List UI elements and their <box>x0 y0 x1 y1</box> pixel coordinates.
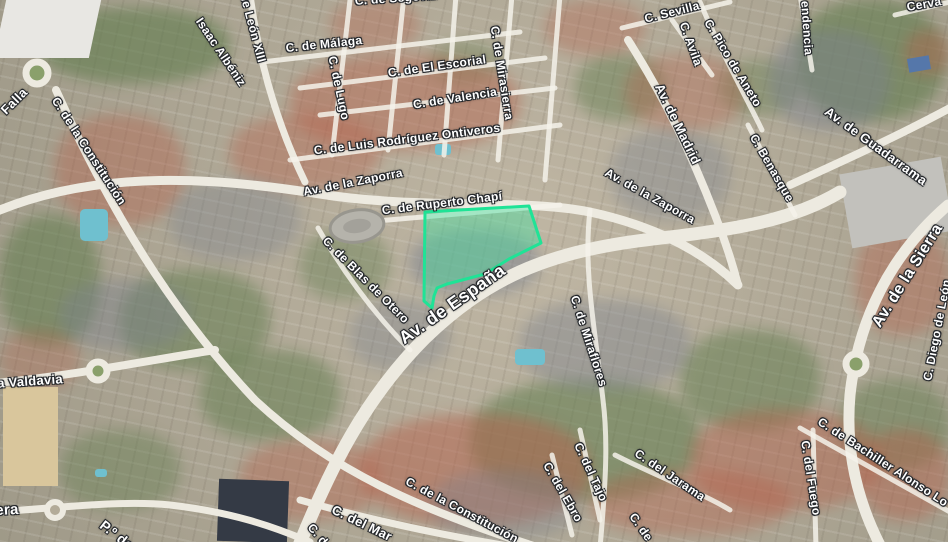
street-label: C. de la Constitución <box>404 475 521 542</box>
street-labels-layer: FallaC. de la Constituciónde León XIIIIs… <box>0 0 948 542</box>
street-label: Av. de España <box>396 261 509 347</box>
street-label: C. de Ruperto Chapí <box>381 190 503 217</box>
street-label: Av. de la Zaporra <box>302 166 404 197</box>
street-label: C. de El Escorial <box>387 53 487 79</box>
street-label: C. del Mar <box>330 503 394 542</box>
street-label: C. de <box>305 521 334 542</box>
street-label: C. de la Constitución <box>50 95 128 207</box>
street-label: P.º de <box>97 518 136 542</box>
street-label: C. Pico de Aneto <box>702 17 764 109</box>
street-label: Av. de Madrid <box>653 82 703 167</box>
street-label: C. Sevilla <box>643 0 701 25</box>
street-label: C. de Bachiller Alonso Lo <box>816 415 948 508</box>
street-label: a Valdavia <box>0 372 63 390</box>
street-label: C. del Fuego <box>799 440 823 517</box>
street-label: C. Avila <box>678 21 705 68</box>
satellite-map[interactable]: FallaC. de la Constituciónde León XIIIIs… <box>0 0 948 542</box>
street-label: C. del Ebro <box>541 460 585 524</box>
street-label: C. del Jarama <box>633 447 708 503</box>
street-label: Cerva <box>906 0 942 13</box>
street-label: C. de <box>627 511 655 542</box>
street-label: C. de Segovia <box>354 0 437 7</box>
street-label: Isaac Albéniz <box>194 16 248 89</box>
street-label: C. de Mirasierra <box>489 25 516 121</box>
street-label: endencia <box>799 0 815 55</box>
street-label: C. Diego de León <box>921 278 948 381</box>
street-label: C. de Miraflores <box>569 294 610 388</box>
street-label: C. de Valencia <box>412 85 498 110</box>
street-label: era <box>0 502 19 518</box>
street-label: C. Benasque <box>748 132 796 204</box>
street-label: C. de Lugo <box>326 55 351 121</box>
street-label: Av. de la Zaporra <box>603 166 697 226</box>
street-label: Av. de Guadarrama <box>822 105 929 188</box>
street-label: C. de Málaga <box>285 34 363 54</box>
street-label: C. de Luis Rodríguez Ontiveros <box>313 122 501 157</box>
street-label: de León XIII <box>238 0 268 64</box>
street-label: C. de Blas de Otero <box>321 235 412 326</box>
street-label: C. del Tajo <box>572 441 610 503</box>
street-label: Falla <box>0 85 30 116</box>
